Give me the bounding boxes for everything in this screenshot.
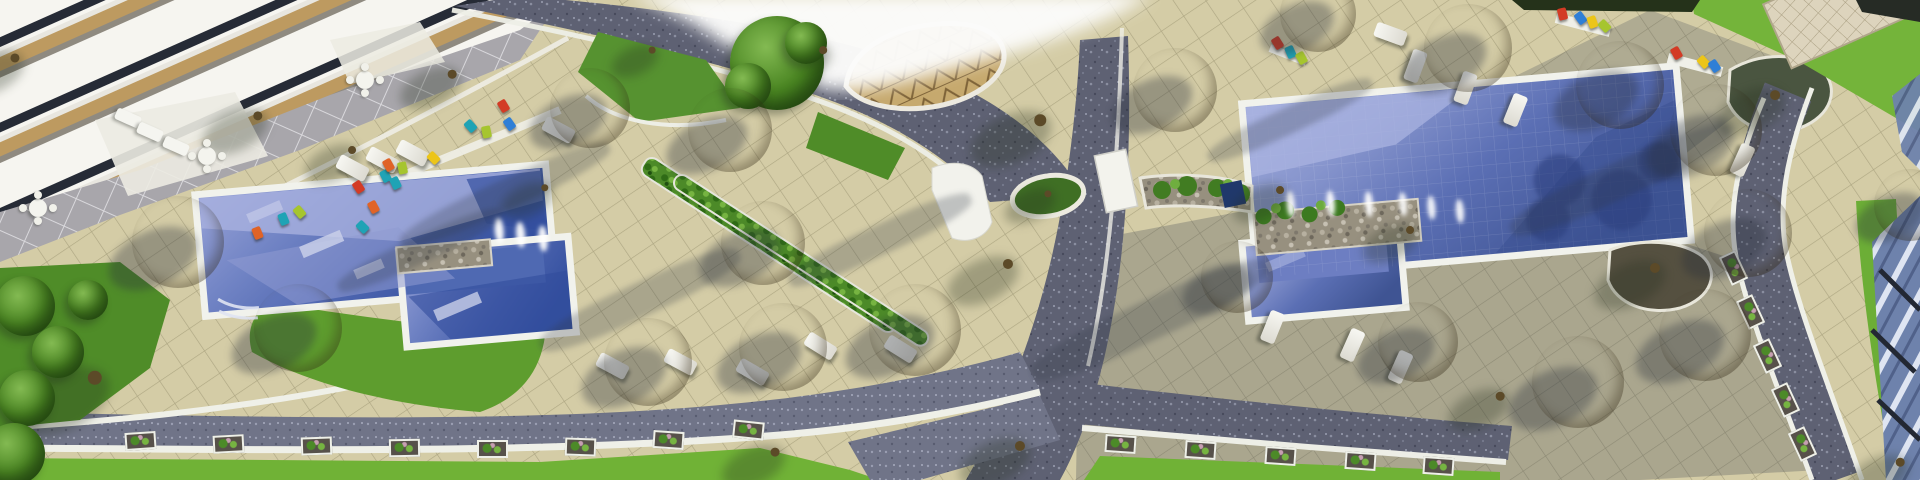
palm-tree	[738, 415, 812, 480]
sun-lounger	[1259, 309, 1285, 344]
palm-tree	[624, 22, 680, 78]
shadow-streak	[1203, 70, 1377, 170]
accent-chair	[1573, 11, 1587, 26]
patio-table	[198, 147, 216, 165]
palm-tree	[791, 18, 855, 82]
accent-chair	[277, 212, 290, 226]
patio-chair	[361, 63, 369, 71]
palm-tree	[1018, 164, 1078, 224]
planter-box	[1264, 446, 1296, 466]
palm-tree	[514, 157, 576, 219]
planter-box	[477, 440, 508, 458]
thatch-umbrella	[739, 303, 827, 391]
patio-chair	[34, 191, 42, 199]
thatch-umbrella	[132, 196, 224, 288]
planter-box	[1787, 426, 1816, 462]
planter-box	[212, 434, 244, 454]
planter-box	[1104, 434, 1136, 454]
thatch-umbrella	[688, 88, 772, 172]
thatch-umbrella	[1704, 189, 1792, 277]
patio-chair	[203, 139, 211, 147]
accent-chair	[1556, 7, 1568, 21]
thatch-umbrella	[721, 201, 805, 285]
planter-box	[564, 437, 596, 456]
patio-table	[29, 199, 47, 217]
thatch-umbrella	[1670, 84, 1762, 176]
palm-tree	[319, 117, 385, 183]
scene-items	[0, 0, 1920, 480]
thatch-umbrella	[254, 284, 342, 372]
planter-box	[1770, 382, 1799, 418]
patio-chair	[346, 76, 354, 84]
planter-box	[1752, 338, 1781, 374]
thatch-umbrella	[1532, 336, 1624, 428]
thatch-umbrella	[1424, 4, 1512, 92]
palm-tree	[1864, 426, 1920, 480]
planter-box	[652, 430, 684, 450]
patio-chair	[188, 152, 196, 160]
palm-tree	[1247, 157, 1313, 223]
thatch-umbrella	[1576, 41, 1664, 129]
accent-chair	[1669, 46, 1683, 61]
thatch-umbrella	[1201, 241, 1273, 313]
patio-chair	[34, 217, 42, 225]
accent-chair	[292, 205, 307, 220]
accent-chair	[502, 117, 516, 132]
accent-chair	[396, 161, 407, 175]
palm-tree	[992, 72, 1088, 168]
shadow-streak	[333, 200, 507, 300]
thatch-umbrella	[604, 318, 692, 406]
planter-box	[1422, 456, 1454, 476]
planter-box	[300, 436, 332, 455]
patio-sofa	[162, 135, 191, 157]
palm-tree	[1377, 197, 1443, 263]
accent-chair	[366, 200, 380, 215]
patio-chair	[203, 165, 211, 173]
thatch-umbrella	[869, 284, 961, 376]
patio-sofa	[136, 121, 165, 143]
tree	[0, 276, 55, 336]
planter-box	[124, 431, 156, 451]
accent-chair	[480, 125, 491, 139]
palm-tree	[35, 318, 155, 438]
accent-chair	[463, 119, 478, 134]
aerial-resort-render	[0, 0, 1920, 480]
palm-tree	[416, 38, 488, 110]
patio-chair	[218, 152, 226, 160]
sun-lounger	[1372, 21, 1407, 46]
patio-chair	[49, 204, 57, 212]
accent-chair	[355, 220, 370, 235]
patio-chair	[376, 76, 384, 84]
thatch-umbrella	[1378, 302, 1458, 382]
accent-chair	[388, 176, 401, 191]
accent-chair	[251, 226, 264, 240]
thatch-umbrella	[550, 68, 630, 148]
planter-box	[1184, 440, 1216, 460]
thatch-umbrella	[1133, 48, 1217, 132]
sun-lounger	[1502, 92, 1528, 127]
palm-tree	[978, 404, 1062, 480]
accent-chair	[496, 99, 510, 114]
thatch-umbrella	[1659, 289, 1751, 381]
planter-box	[388, 439, 419, 458]
palm-tree	[966, 222, 1050, 306]
patio-chair	[19, 204, 27, 212]
patio-table	[356, 71, 374, 89]
planter-box	[1344, 451, 1376, 471]
shadow-streak	[783, 184, 977, 296]
accent-chair	[1586, 15, 1599, 29]
patio-chair	[361, 89, 369, 97]
palm-tree	[0, 20, 53, 96]
palm-tree	[219, 77, 297, 155]
tree	[68, 280, 108, 320]
accent-chair	[1597, 19, 1612, 34]
